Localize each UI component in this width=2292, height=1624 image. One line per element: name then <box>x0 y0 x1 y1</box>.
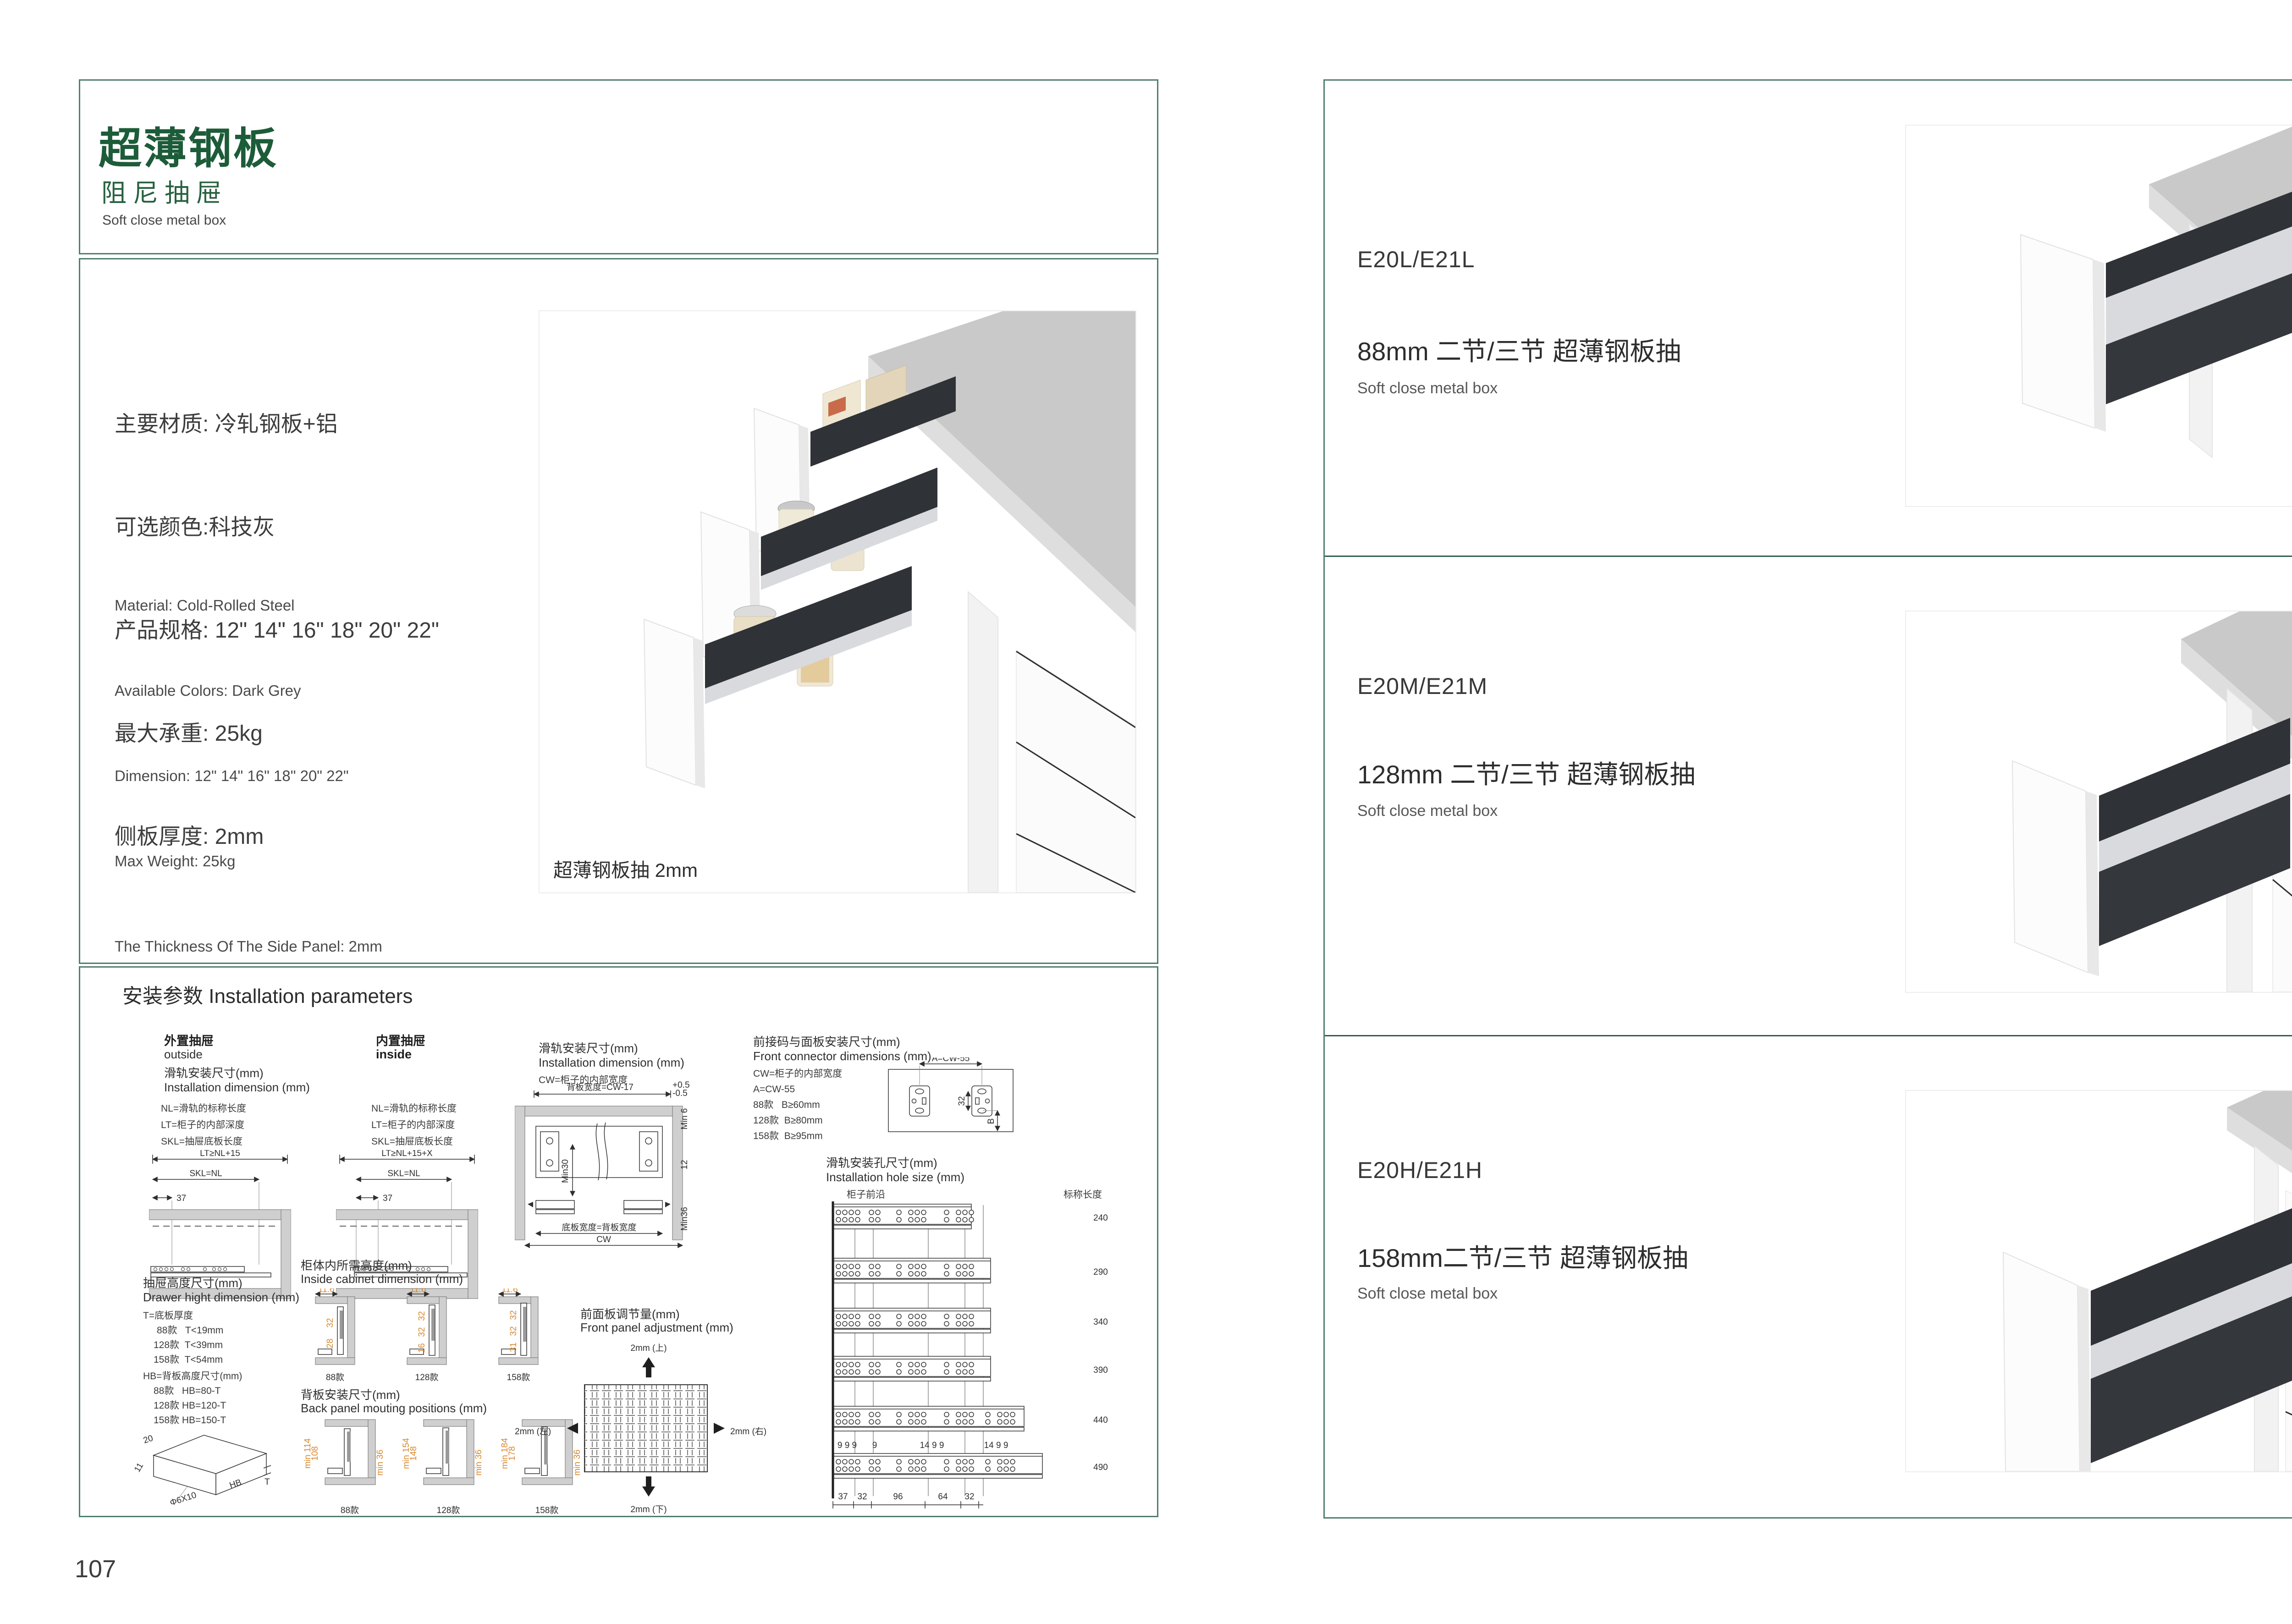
rail-390 <box>834 1356 991 1381</box>
front-panel <box>584 1385 707 1472</box>
rail-290 <box>834 1258 991 1283</box>
holes-title-cn: 滑轨安装孔尺寸(mm) <box>826 1154 937 1171</box>
drawer-panel-edge <box>2086 791 2099 976</box>
front-panel-adjustment-diagram: 2mm (上) 2mm (左) 2mm (右) 2mm (下) <box>511 1337 804 1515</box>
adjust-title-cn: 前面板调节量(mm) <box>580 1305 680 1322</box>
hole-spacing: 9 <box>872 1441 877 1450</box>
screw-icon <box>665 1202 671 1207</box>
rail-length: 490 <box>1093 1463 1108 1472</box>
product-code-e20h: E20H/E21H <box>1357 1157 1482 1184</box>
rail-length: 240 <box>1093 1213 1108 1223</box>
inside-title-en: inside <box>376 1047 412 1062</box>
back-panel-88: min 114 108 min 36 88款 <box>304 1420 385 1515</box>
spec-cn-line: 主要材质: 冷轧钢板+铝 <box>115 407 439 441</box>
outside-legend-line: NL=滑轨的标称长度 <box>161 1101 246 1116</box>
arrow-right-icon <box>714 1423 725 1434</box>
product-subtitle-e20h: Soft close metal box <box>1357 1285 1498 1303</box>
rail-340 <box>834 1308 991 1333</box>
dim-label: 11.6 <box>318 1288 335 1294</box>
dim-label: 28 <box>325 1338 335 1348</box>
inside-legend-line: NL=滑轨的标称长度 <box>371 1101 457 1116</box>
drawer-158mm-illustration <box>1906 1091 2292 1471</box>
section-divider <box>1325 556 2292 557</box>
front-connector-diagram: A=CW-55 32 B <box>884 1057 1018 1136</box>
dim-label: LT≥NL+15+X <box>381 1150 433 1158</box>
dim-label: Min36 <box>680 1207 689 1231</box>
adjust-title-en: Front panel adjustment (mm) <box>580 1321 733 1335</box>
dim-label: B <box>986 1118 996 1124</box>
rail-440 <box>834 1406 1024 1431</box>
outside-title-cn: 外置抽屉 <box>164 1031 214 1049</box>
dim-label: A=CW-55 <box>932 1057 970 1063</box>
product-subtitle-e20m: Soft close metal box <box>1357 802 1498 820</box>
base-dim: 32 <box>964 1492 974 1502</box>
inside-legend-line: LT=柜子的内部深度 <box>371 1118 455 1133</box>
dim-label: SKL=NL <box>189 1169 222 1178</box>
dim-label: min 36 <box>375 1449 385 1475</box>
rail-length: 340 <box>1093 1317 1108 1327</box>
height-t-line: T=底板厚度 <box>143 1309 193 1323</box>
arrow-up-stem <box>646 1367 651 1377</box>
product-photo-158mm <box>1905 1090 2292 1472</box>
adjust-left-label: 2mm (左) <box>515 1426 551 1437</box>
adjust-down-label: 2mm (下) <box>630 1505 667 1514</box>
dim-label: 108 <box>310 1446 320 1461</box>
height-title-en: Drawer hight dimension (mm) <box>143 1290 299 1305</box>
dim-label: T <box>264 1477 270 1487</box>
dim-label: Min 6 <box>680 1108 689 1129</box>
back-panel-title-en: Back panel mouting positions (mm) <box>301 1401 487 1415</box>
product-subtitle-e20l: Soft close metal box <box>1357 380 1498 397</box>
dim-label: 32 <box>325 1318 335 1327</box>
dim-label: SKL=NL <box>387 1169 420 1178</box>
spec-en-line: Dimension: 12" 14" 16" 18" 20" 22" <box>115 762 382 790</box>
page-subtitle: 阻尼抽屉 <box>101 172 228 209</box>
drawer-height-sketch: 20 11 Φ6X10 HB T <box>134 1429 276 1514</box>
installation-hole-size-diagram: 240 290 340 390 440 9 9 9 9 14 9 9 14 9 … <box>826 1200 1149 1513</box>
connector-legend-line: 88款 B≥60mm <box>753 1098 820 1112</box>
product-photo-128mm <box>1905 611 2292 993</box>
base-dim: 96 <box>893 1492 903 1502</box>
page-subtitle-en: Soft close metal box <box>102 213 226 228</box>
rail-length: 440 <box>1093 1415 1108 1425</box>
dim-label: 32 <box>417 1311 427 1321</box>
cabinet-height-title-en: Inside cabinet dimension (mm) <box>301 1272 463 1286</box>
connector-legend-line: CW=柜子的内部宽度 <box>753 1067 842 1081</box>
rail-490 <box>834 1453 1042 1478</box>
dim-label: 11.6 <box>501 1288 518 1294</box>
dim-label: 12 <box>680 1160 689 1169</box>
height-hb-line: 128款 HB=120-T <box>154 1398 226 1413</box>
rail-length: 390 <box>1093 1365 1108 1375</box>
specs-en: Material: Cold-Rolled Steel Available Co… <box>115 534 382 1018</box>
dim-label: 37 <box>383 1194 392 1203</box>
dim-label: 32 <box>417 1327 427 1337</box>
hole-spacing: 9 9 9 <box>837 1441 857 1450</box>
product-code-e20m: E20M/E21M <box>1357 673 1488 699</box>
adjust-up-label: 2mm (上) <box>630 1343 667 1353</box>
dim-label: 11.6 <box>410 1288 426 1294</box>
hole-spacing: 14 9 9 <box>920 1441 944 1450</box>
base-dim: 32 <box>857 1492 867 1502</box>
drawer-88mm-illustration <box>1906 126 2292 506</box>
dim-label: 背板宽度=CW-17 <box>567 1082 634 1092</box>
product-size-e20l: 88mm 二节/三节 超薄钢板抽 <box>1357 331 1681 368</box>
page-title: 超薄钢板 <box>99 114 278 176</box>
drawer-panel-edge <box>2077 1285 2091 1471</box>
countertop <box>868 311 1135 607</box>
product-photo-88mm <box>1905 125 2292 507</box>
arrow-down-icon <box>642 1486 655 1497</box>
width-cross-section-diagram: 背板宽度=CW-17 +0.5 -0.5 Min30 Min 6 12 Min3… <box>515 1080 690 1251</box>
rail-240 <box>834 1204 974 1229</box>
back-panel-128: min 154 148 min 36 128款 <box>402 1420 484 1515</box>
product-photo-drawers: 超薄钢板抽 2mm <box>539 310 1136 893</box>
dim-label: Min30 <box>561 1159 570 1183</box>
dim-label: min 36 <box>474 1449 484 1475</box>
inside-legend-line: SKL=抽屉底板长度 <box>371 1134 453 1149</box>
product-overview-box: 主要材质: 冷轧钢板+铝 可选颜色:科技灰 产品规格: 12" 14" 16" … <box>79 258 1158 964</box>
drawer-front-panel <box>2003 1252 2080 1471</box>
connector-legend-line: 158款 B≥95mm <box>753 1129 823 1144</box>
cabinet-front <box>1016 650 1135 892</box>
connector-legend-line: 128款 B≥80mm <box>753 1113 823 1128</box>
cabinet-panel <box>968 592 998 892</box>
section-divider <box>1325 1035 2292 1036</box>
product-code-e20l: E20L/E21L <box>1357 246 1475 273</box>
screw-icon <box>528 1202 533 1207</box>
photo-caption: 超薄钢板抽 2mm <box>553 855 698 883</box>
width-dim-title-en: Installation dimension (mm) <box>539 1056 684 1070</box>
rail-length: 290 <box>1093 1267 1108 1277</box>
spec-en-line: Available Colors: Dark Grey <box>115 677 382 705</box>
inside-cabinet-88: 11.6 32 28 88款 <box>315 1288 355 1382</box>
dim-label: 底板宽度=背板宽度 <box>562 1222 636 1233</box>
outside-dim-title-cn: 滑轨安装尺寸(mm) <box>164 1064 264 1081</box>
drawer-front-panel <box>2021 235 2095 428</box>
holes-title-en: Installation hole size (mm) <box>826 1170 964 1184</box>
dim-label: 148 <box>409 1446 419 1461</box>
dim-tolerance: -0.5 <box>672 1089 688 1098</box>
height-t-line: 88款 T<19mm <box>157 1323 223 1338</box>
cabinet-height-title-cn: 柜体内所需高度(mm) <box>301 1256 412 1273</box>
drawer-front-panel <box>2012 761 2088 973</box>
inside-title-cn: 内置抽屉 <box>376 1031 425 1049</box>
spec-en-line: Max Weight: 25kg <box>115 847 382 875</box>
height-title-cn: 抽屉高度尺寸(mm) <box>143 1274 242 1291</box>
dim-label: 37 <box>176 1194 186 1203</box>
product-size-e20m: 128mm 二节/三节 超薄钢板抽 <box>1357 754 1695 791</box>
installation-parameters-box: 安装参数 Installation parameters 外置抽屉 outsid… <box>79 966 1158 1517</box>
dim-label: 20 <box>142 1433 154 1446</box>
outside-dim-title-en: Installation dimension (mm) <box>164 1080 310 1095</box>
height-hb-line: HB=背板高度尺寸(mm) <box>143 1369 242 1384</box>
dim-label: Φ6X10 <box>169 1490 198 1508</box>
page-number-left: 107 <box>75 1555 116 1583</box>
dim-label: 32 <box>509 1326 518 1336</box>
title-box: 超薄钢板 阻尼抽屉 Soft close metal box <box>79 79 1158 254</box>
height-hb-line: 158款 HB=150-T <box>154 1413 226 1428</box>
adjust-right-label: 2mm (右) <box>730 1426 766 1437</box>
connector-legend-line: A=CW-55 <box>753 1082 795 1097</box>
height-t-line: 128款 T<39mm <box>154 1338 223 1353</box>
drawer-photo-illustration <box>540 311 1135 892</box>
inside-cabinet-128: 11.6 32 32 16 128款 <box>407 1288 446 1382</box>
base-dim: 37 <box>838 1492 848 1502</box>
hole-spacing: 14 9 9 <box>984 1441 1008 1450</box>
drawer-128mm-illustration <box>1906 611 2292 992</box>
spec-en-line: The Thickness Of The Side Panel: 2mm <box>115 932 382 961</box>
outside-title-en: outside <box>164 1047 203 1062</box>
width-dim-title-cn: 滑轨安装尺寸(mm) <box>539 1039 638 1056</box>
base-dim: 64 <box>938 1492 948 1502</box>
product-series-box: E20L/E21L 88mm 二节/三节 超薄钢板抽 Soft close me… <box>1323 79 2292 1519</box>
outside-legend-line: SKL=抽屉底板长度 <box>161 1134 242 1149</box>
model-label: 88款 <box>341 1505 359 1515</box>
outside-legend-line: LT=柜子的内部深度 <box>161 1118 244 1133</box>
dim-label: 16 <box>417 1343 427 1353</box>
dim-label: LT≥NL+15 <box>200 1150 240 1158</box>
spec-en-line: Material: Cold-Rolled Steel <box>115 591 382 620</box>
model-label: 88款 <box>326 1372 344 1382</box>
arrow-up-icon <box>642 1357 655 1367</box>
product-size-e20h: 158mm二节/三节 超薄钢板抽 <box>1357 1238 1688 1275</box>
arrow-down-stem <box>646 1476 651 1486</box>
drawer-front-bottom <box>644 619 696 785</box>
model-label: 128款 <box>437 1505 460 1515</box>
installation-header: 安装参数 Installation parameters <box>122 980 413 1009</box>
connector-title-cn: 前接码与面板安装尺寸(mm) <box>753 1033 900 1050</box>
height-hb-line: 88款 HB=80-T <box>154 1384 220 1398</box>
dim-label: 11 <box>134 1461 145 1474</box>
dim-label: CW <box>596 1235 611 1244</box>
model-label: 128款 <box>415 1372 439 1382</box>
dim-label: 32 <box>509 1310 518 1320</box>
height-t-line: 158款 T<54mm <box>154 1353 223 1367</box>
drawer-panel-edge <box>2093 259 2106 432</box>
arrow-left-icon <box>567 1423 578 1434</box>
back-panel-title-cn: 背板安装尺寸(mm) <box>301 1386 400 1403</box>
dim-label: 32 <box>957 1096 967 1106</box>
